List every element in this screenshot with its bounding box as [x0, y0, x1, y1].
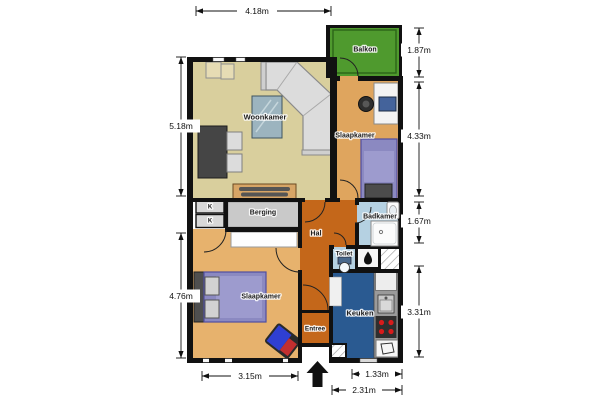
burner-3	[379, 329, 384, 334]
sideboard-slat-1	[239, 187, 290, 191]
window-slaapkamer-2	[225, 359, 232, 362]
pillow-2	[205, 300, 219, 318]
shower-tray	[371, 221, 398, 246]
dim-right-balkon: 1.87m	[401, 28, 437, 77]
label-keuken: Keuken	[346, 309, 374, 318]
wall-top-ext	[187, 57, 337, 62]
sofa-armrest-bottom	[302, 150, 331, 155]
floor-plan-canvas: Woonkamer Slaapkamer Balkon Berging Hal …	[0, 0, 600, 400]
dim-left-upper-label: 5.18m	[169, 121, 193, 131]
entry-porch	[300, 346, 331, 358]
burner-1	[379, 320, 384, 325]
floor-plan-page: Woonkamer Slaapkamer Balkon Berging Hal …	[0, 0, 600, 400]
label-balkon: Balkon	[353, 47, 376, 54]
wall-keuken-left-a	[329, 273, 333, 277]
entrance-arrow-icon	[307, 361, 329, 387]
faucet-icon	[385, 297, 388, 300]
dim-bottom-keuken-inner-label: 1.33m	[365, 369, 389, 379]
label-slaapkamer-beneden: Slaapkamer	[241, 294, 281, 301]
wall-hal-left-b	[298, 270, 302, 363]
kitchen-cabinet-top	[376, 273, 397, 291]
dining-table	[198, 126, 227, 178]
wall-balkon-bottom-b	[358, 76, 403, 81]
door-leaf-front	[302, 343, 329, 347]
dim-right-badkamer: 1.67m	[401, 202, 437, 243]
wall-badkamer-left-b	[355, 223, 359, 247]
shaft-hatched-2	[331, 344, 346, 358]
burner-4	[388, 329, 393, 334]
window-slaapkamer-3	[283, 359, 288, 362]
dim-bottom-slaapkamer-label: 3.15m	[238, 371, 262, 381]
dim-top: 4.18m	[196, 5, 331, 18]
label-slaapkamer-boven: Slaapkamer	[335, 133, 375, 140]
dim-right-slaapkamer: 4.33m	[401, 82, 437, 196]
wardrobe	[231, 232, 297, 247]
dim-right-badkamer-label: 1.67m	[407, 216, 431, 226]
desk-chair-seat	[363, 101, 370, 108]
window-woonkamer-1	[213, 58, 224, 62]
toilet-bowl	[340, 263, 350, 273]
wall-toilet-top-a	[329, 245, 334, 249]
label-hal: Hal	[311, 231, 322, 238]
wall-berging-bottom	[225, 227, 301, 232]
window-woonkamer-2	[236, 58, 245, 62]
door-leaf-hal-entree	[302, 310, 329, 313]
window-slaapkamer-1	[203, 359, 209, 362]
wall-badkamer-left-a	[355, 198, 359, 205]
wall-mid-a	[193, 198, 305, 202]
kitchen-sink-basin	[380, 300, 392, 311]
window-keuken	[360, 359, 377, 363]
bed-boven-footboard	[365, 184, 392, 198]
label-kast-1: K	[208, 205, 213, 211]
label-badkamer: Badkamer	[363, 214, 397, 221]
wall-balkon-top	[326, 25, 402, 28]
wall-mid-b	[325, 198, 340, 202]
dining-chair-1	[227, 132, 242, 150]
wall-mid-c	[358, 198, 398, 202]
dim-right-keuken: 3.31m	[401, 266, 437, 357]
pillow-1	[205, 277, 219, 295]
cabinet-box-1	[206, 62, 221, 78]
dim-right-keuken-label: 3.31m	[407, 307, 431, 317]
dim-bottom-keuken-outer: 2.31m	[332, 384, 402, 397]
wall-left-ext	[187, 57, 193, 363]
kitchen-stove	[376, 316, 397, 338]
label-woonkamer: Woonkamer	[244, 113, 287, 122]
burner-2	[388, 320, 393, 325]
dining-chair-2	[227, 154, 242, 172]
dim-right-slaapkamer-label: 4.33m	[407, 131, 431, 141]
cabinet-box-2	[221, 64, 234, 79]
label-berging: Berging	[250, 210, 276, 217]
label-kast-2: K	[208, 219, 213, 225]
wall-hal-left-a	[298, 198, 302, 248]
sideboard-slat-2	[241, 193, 288, 197]
dim-bottom-keuken-inner: 1.33m	[352, 368, 402, 381]
label-entree: Entree	[305, 326, 326, 333]
kitchen-cabinet-bottom	[376, 340, 398, 357]
dim-bottom-slaapkamer: 3.15m	[202, 370, 298, 383]
dim-top-label: 4.18m	[245, 6, 269, 16]
wall-k-right	[224, 200, 227, 228]
dim-right-balkon-label: 1.87m	[407, 45, 431, 55]
desk-monitor	[379, 97, 396, 111]
wall-balkon-left	[326, 25, 330, 78]
label-toilet: Toilet	[336, 251, 354, 258]
sideboard	[233, 184, 296, 199]
dim-left-lower-label: 4.76m	[169, 291, 193, 301]
bed-boven-blanket	[364, 151, 394, 182]
sofa-armrest-left	[261, 62, 266, 90]
wall-balkon-bottom-a	[331, 76, 340, 81]
shaft-hatched-1	[380, 248, 400, 270]
kitchen-doorway-threshold	[330, 277, 342, 306]
dim-bottom-keuken-outer-label: 2.31m	[352, 385, 376, 395]
